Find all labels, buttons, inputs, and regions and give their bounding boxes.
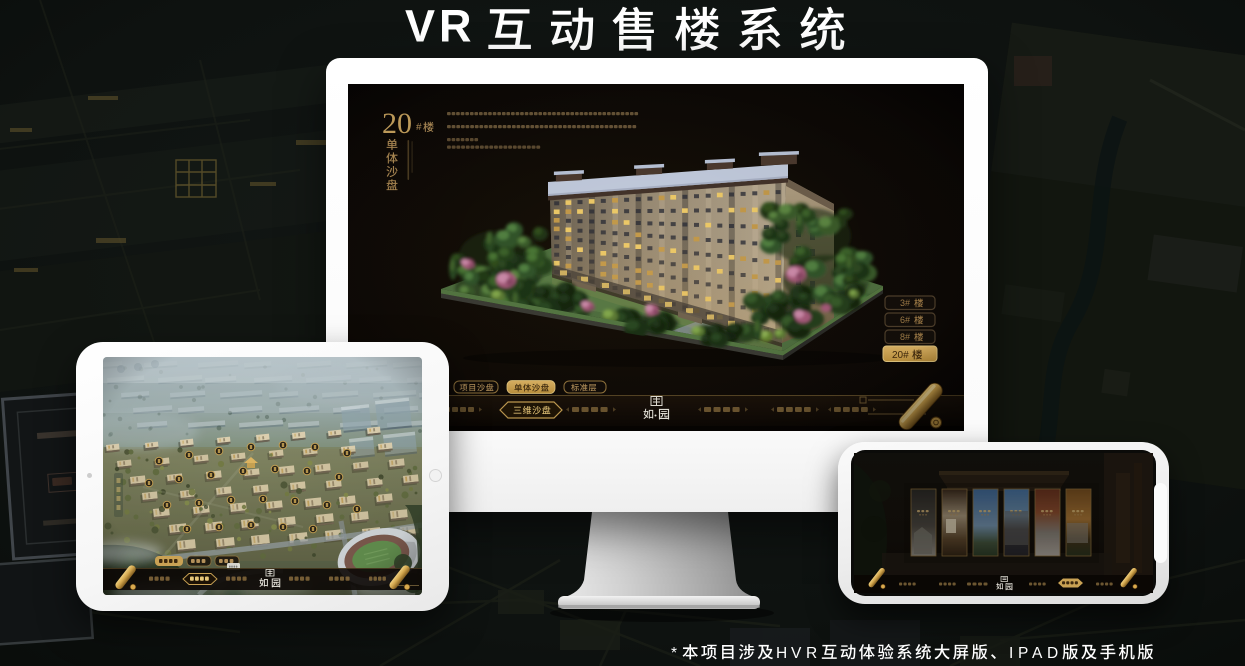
svg-text:VR: VR	[405, 1, 476, 52]
svg-text:A: A	[1032, 645, 1043, 662]
svg-text:P: P	[1018, 645, 1028, 662]
svg-text:V: V	[791, 645, 802, 662]
svg-text:R: R	[806, 645, 817, 662]
svg-text:D: D	[1047, 645, 1058, 662]
svg-text:*: *	[671, 645, 677, 662]
svg-text:I: I	[1009, 645, 1013, 662]
svg-text:H: H	[776, 645, 787, 662]
